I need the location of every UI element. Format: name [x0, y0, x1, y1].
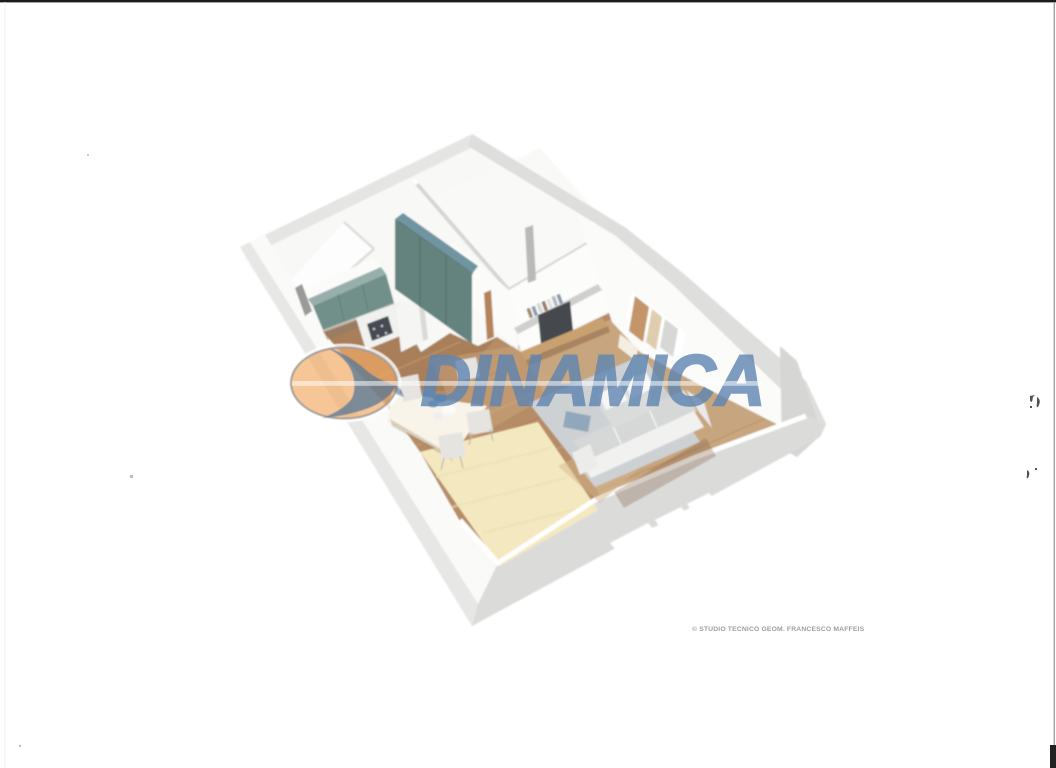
- svg-text:© STUDIO TECNICO GEOM. FRANCES: © STUDIO TECNICO GEOM. FRANCESCO MAFFEIS: [692, 625, 865, 633]
